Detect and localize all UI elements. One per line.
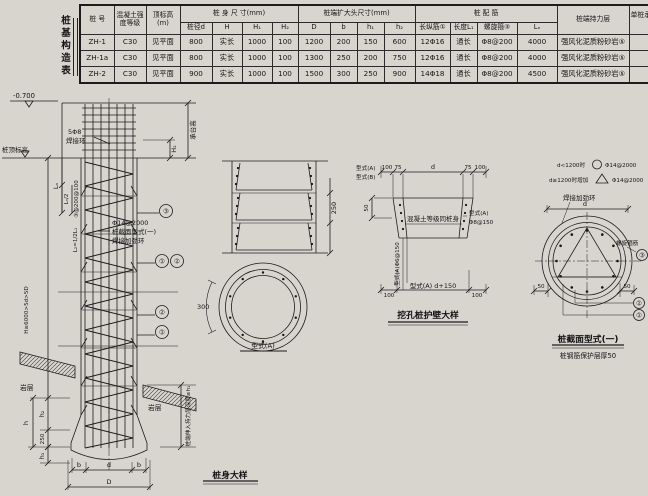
col-concrete: 混凝土强度等级 — [114, 5, 146, 34]
d-dim: d — [107, 461, 111, 469]
cell: 100 — [272, 66, 298, 83]
col-h1: h₁ — [357, 22, 384, 34]
arc-dim-300: 300 — [197, 303, 209, 311]
cell: 150 — [357, 34, 384, 50]
weld-ring-label-1: 5Φ8 — [68, 128, 81, 136]
cell: ZH-1 — [80, 34, 114, 50]
cell: 250 — [357, 66, 384, 83]
dim-250-label: 250 — [40, 433, 46, 444]
st-stiffener-label: 焊接加劲环 — [563, 193, 596, 202]
cell: 750 — [384, 50, 415, 66]
elevation-label: -0.700 — [13, 92, 35, 100]
cell: 12Φ16 — [415, 50, 450, 66]
legend-2-bar: Φ14@2000 — [612, 178, 644, 184]
h2b-dim-label: h₂ — [38, 410, 46, 417]
section-type-subtitle: 桩钢筋保护层厚50 — [560, 351, 616, 360]
col-dia: 桩径d — [180, 22, 212, 34]
cell: 14Φ18 — [415, 66, 450, 83]
st-callout-2: ② — [636, 300, 642, 308]
col-pile-no: 桩 号 — [80, 5, 114, 34]
cell: 见平面 — [146, 50, 180, 66]
table-row: ZH-1C30见平面800实长1000100120020015060012Φ16… — [80, 34, 648, 50]
cell: 2820 — [629, 66, 648, 83]
cell: 见平面 — [146, 66, 180, 83]
col-b: b — [330, 22, 357, 34]
st-50-left: 50 — [537, 284, 545, 290]
cell: 800 — [180, 34, 212, 50]
rock-layer-label-right: 岩层 — [148, 403, 162, 412]
cell: 100 — [272, 50, 298, 66]
col-bearing: 桩端持力层 — [557, 5, 629, 34]
legend-2-text: d≥1200时增加 — [549, 176, 589, 184]
col-long-bars: 长纵筋① — [415, 22, 450, 34]
wall-stack-lines — [206, 161, 333, 351]
cell: 通长 — [450, 66, 477, 83]
stiffener-note-3: 焊接加劲环 — [112, 236, 145, 245]
pile-top-elevation-label: 桩顶标高 — [2, 145, 29, 154]
cell: 1800 — [629, 34, 648, 50]
cell: Φ8@200 — [477, 34, 517, 50]
cell: 900 — [180, 66, 212, 83]
stack-dim-250: 250 — [330, 202, 338, 214]
cell: 100 — [272, 34, 298, 50]
ln-dim-label: Lₙ — [52, 182, 60, 189]
wd-dim-100-r: 100 — [475, 165, 486, 171]
wd-right-type-a: 型式(A) — [469, 209, 488, 217]
col-spiral: 螺旋箍③ — [477, 22, 517, 34]
rock-layer-label-left: 岩层 — [20, 383, 34, 392]
wd-concrete-note: 混凝土等级同桩身 — [407, 214, 460, 223]
legend-1-bar: Φ14@2000 — [605, 163, 637, 169]
cell: ZH-1a — [80, 50, 114, 66]
cell: 250 — [330, 50, 357, 66]
section-type-labels: d<1200时 Φ14@2000 d≥1200时增加 Φ14@2000 焊接加劲… — [537, 161, 645, 360]
cell: 实长 — [212, 50, 242, 66]
legend-1-text: d<1200时 — [557, 161, 585, 169]
cell: 强风化泥质粉砂岩⑤ — [557, 66, 629, 83]
pile-detail-lines — [2, 98, 258, 490]
cap-height-label: 承台高 — [188, 120, 197, 140]
section-type-lines — [531, 160, 648, 348]
wd-dim-50: 50 — [364, 204, 370, 212]
col-Ln: Lₙ — [517, 22, 557, 34]
cell: 1000 — [242, 50, 272, 66]
cell: 4000 — [517, 50, 557, 66]
weld-ring-label-2: 焊接环 — [66, 136, 86, 145]
cell: 200 — [357, 50, 384, 66]
h-dim-label: h — [22, 421, 30, 425]
stiffener-note-1: Φ14@2000 — [112, 219, 148, 227]
cell: C30 — [114, 34, 146, 50]
wd-type-b: 型式(B) — [356, 173, 375, 181]
wd-bottom-100-r: 100 — [472, 293, 483, 299]
D-dim: D — [106, 478, 111, 486]
wd-dim-75-l: 75 — [394, 165, 402, 171]
cell: 12Φ16 — [415, 34, 450, 50]
col-H2: H₂ — [272, 22, 298, 34]
embed-depth-label: 桩端伸入持力层深度≥h₁ — [184, 386, 192, 447]
wd-bottom-100-l: 100 — [384, 293, 395, 299]
section-type-title: 桩截面型式(一) — [558, 333, 619, 345]
h2-dim-label: H₂ — [170, 145, 178, 153]
cell: 4500 — [517, 66, 557, 83]
cell: 1500 — [298, 66, 330, 83]
cell: 2100 — [629, 50, 648, 66]
callout-2: ② — [174, 258, 180, 266]
ln-half-dim-label: Lₙ/2 — [64, 194, 70, 205]
cell: 实长 — [212, 34, 242, 50]
cell: 通长 — [450, 50, 477, 66]
wd-type-a: 型式(A) — [356, 164, 375, 172]
col-H1: H₁ — [242, 22, 272, 34]
callout-3: ③ — [163, 208, 169, 216]
drawing-sheet: -0.700 桩顶标高 5Φ8 焊接环 承台高 H₂ Lₙ Lₙ/2 ③@200… — [0, 0, 648, 496]
cell: 600 — [384, 34, 415, 50]
cell: 通长 — [450, 34, 477, 50]
cell: 实长 — [212, 66, 242, 83]
col-top-elev: 顶标高(m) — [146, 5, 180, 34]
st-d-dim: d — [583, 200, 587, 208]
st-callout-3: ③ — [639, 252, 645, 260]
col-capacity: 单桩承载力特征值(kN) — [629, 5, 648, 34]
wd-dim-75-r: 75 — [464, 165, 472, 171]
wd-dim-100-l: 100 — [382, 165, 393, 171]
callout-1: ① — [159, 258, 165, 266]
cell: 强风化泥质粉砂岩⑤ — [557, 34, 629, 50]
col-D: D — [298, 22, 330, 34]
cell: 1300 — [298, 50, 330, 66]
col-head-dims: 桩端扩大头尺寸(mm) — [298, 5, 415, 22]
col-rebar: 桩 配 筋 — [415, 5, 557, 22]
cell: 300 — [330, 66, 357, 83]
st-spiral-label: 螺旋箍筋 — [616, 239, 639, 247]
stiffener-note-2: 桩截面型式(一) — [112, 227, 156, 236]
col-body-dims: 桩 身 尺 寸(mm) — [180, 5, 298, 22]
wall-detail-title: 挖孔桩护壁大样 — [397, 309, 459, 321]
col-h2: h₂ — [384, 22, 415, 34]
wd-vert-label: 型式(A)Φ6@150 — [393, 242, 401, 286]
cell: 强风化泥质粉砂岩⑤ — [557, 50, 629, 66]
st-callout-1: ① — [636, 312, 642, 320]
st-50-right: 50 — [623, 284, 631, 290]
l2-dim-label: L₂=1/2L₁ — [73, 228, 79, 252]
cell: 1200 — [298, 34, 330, 50]
table-row: ZH-2C30见平面900实长1000100150030025090014Φ18… — [80, 66, 648, 83]
b-dim-left: b — [77, 461, 81, 469]
cell: 见平面 — [146, 34, 180, 50]
spiral-spacing-label: ③@200@100 — [73, 180, 80, 218]
type-a-plan-label: 型式(A) — [251, 341, 275, 350]
spec-table: 桩 号 混凝土强度等级 顶标高(m) 桩 身 尺 寸(mm) 桩端扩大头尺寸(m… — [79, 4, 648, 84]
cell: 1000 — [242, 34, 272, 50]
b-dim-right: b — [137, 461, 141, 469]
cell: Φ8@200 — [477, 66, 517, 83]
cell: Φ8@200 — [477, 50, 517, 66]
pile-detail-title: 桩身大样 — [212, 469, 247, 481]
col-H: H — [212, 22, 242, 34]
table-row: ZH-1aC30见平面800实长1000100130025020075012Φ1… — [80, 50, 648, 66]
total-depth-label: H≥6000>5d>5D — [24, 286, 30, 333]
table-side-title: 桩基构造表 — [57, 15, 71, 78]
cell: 200 — [330, 34, 357, 50]
cell: C30 — [114, 66, 146, 83]
side-title-rule — [73, 18, 78, 76]
wd-bottom-mid: 型式(A) d+150 — [410, 281, 457, 290]
callout-2-lower: ② — [159, 309, 165, 317]
wd-dim-d: d — [431, 163, 435, 171]
cell: 900 — [384, 66, 415, 83]
cell: ZH-2 — [80, 66, 114, 83]
cell: C30 — [114, 50, 146, 66]
col-length-L1: 长度L₁ — [450, 22, 477, 34]
callout-1-lower: ① — [159, 329, 165, 337]
wall-detail-lines — [369, 166, 489, 325]
cell: 1000 — [242, 66, 272, 83]
h1-dim-label: h₁ — [38, 452, 46, 459]
cell: 4000 — [517, 34, 557, 50]
wd-right-bar: Φ8@150 — [469, 220, 494, 226]
cell: 800 — [180, 50, 212, 66]
